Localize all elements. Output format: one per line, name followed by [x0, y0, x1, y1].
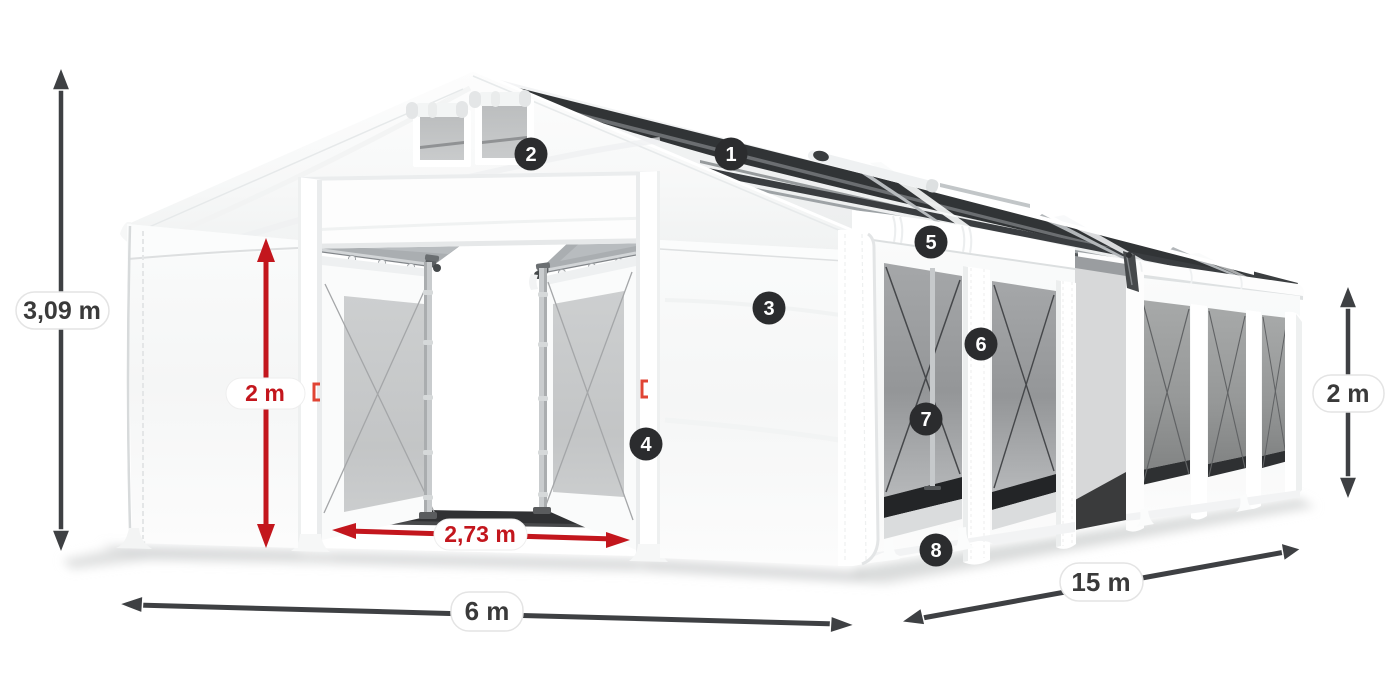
svg-text:2,73 m: 2,73 m: [444, 521, 516, 547]
svg-text:1: 1: [725, 144, 736, 166]
svg-text:3: 3: [763, 298, 774, 320]
svg-text:3,09 m: 3,09 m: [23, 297, 101, 325]
svg-text:6 m: 6 m: [465, 596, 510, 626]
svg-text:2 m: 2 m: [245, 380, 285, 406]
svg-text:2 m: 2 m: [1326, 380, 1369, 408]
svg-text:6: 6: [975, 334, 986, 356]
svg-text:15 m: 15 m: [1071, 567, 1130, 597]
svg-text:4: 4: [640, 434, 652, 456]
svg-text:2: 2: [525, 144, 536, 166]
svg-text:7: 7: [920, 409, 931, 431]
svg-text:5: 5: [925, 232, 936, 254]
svg-text:8: 8: [930, 540, 941, 562]
